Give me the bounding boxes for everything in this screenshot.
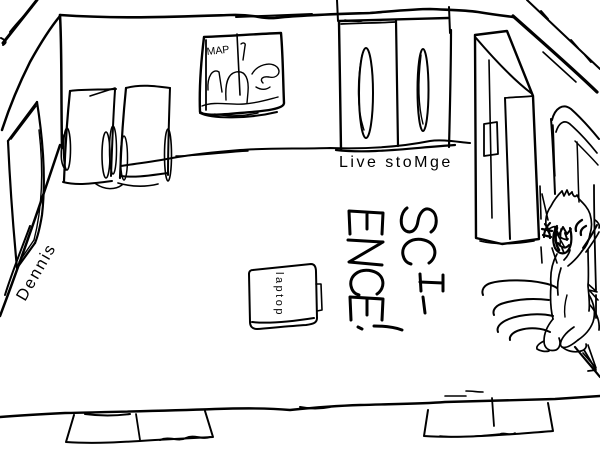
svg-text:laptop: laptop <box>273 272 285 317</box>
svg-text:Dennis: Dennis <box>13 240 60 304</box>
svg-text:MAP: MAP <box>206 44 230 58</box>
svg-text:Live stoMge: Live stoMge <box>339 154 453 171</box>
